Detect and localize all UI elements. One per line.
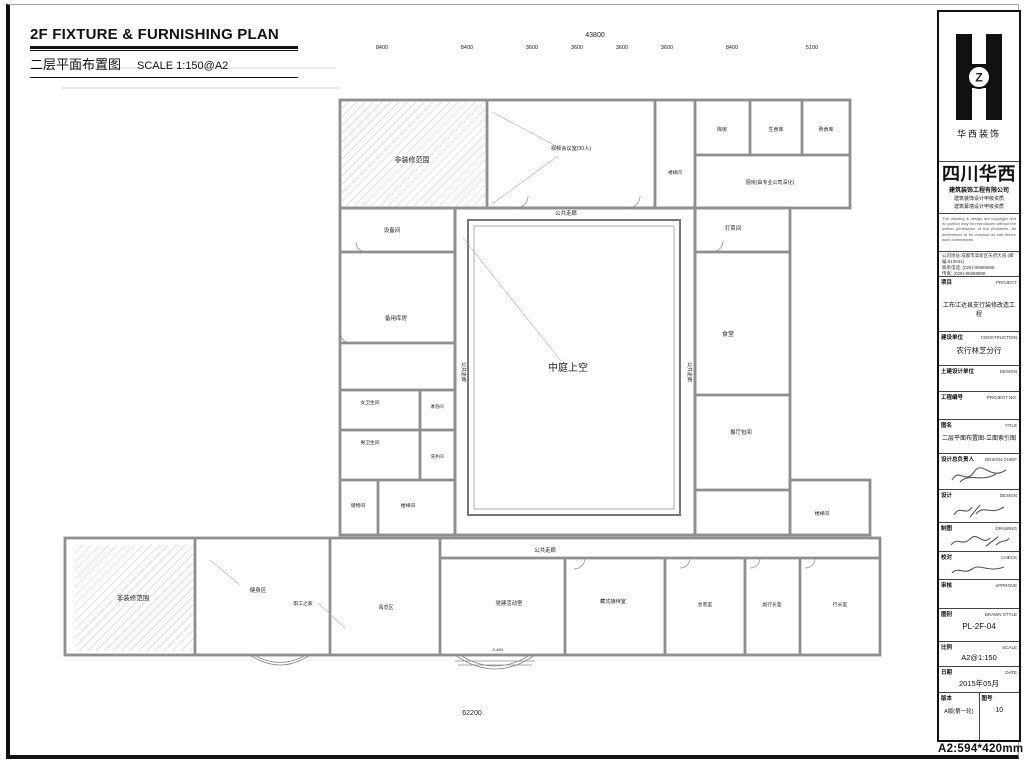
tb-row-project: 项目PROJECT 工布江达县支行装修改造工程: [939, 277, 1019, 332]
room-label-video-conf: 视频会议室(30人): [551, 144, 592, 152]
room-label-kitchen: 厨房(由专业公司深化): [746, 179, 795, 186]
dim-top-seg: 8400: [461, 45, 473, 51]
drawing-title: 2F FIXTURE & FURNISHING PLAN 二层平面布置图 SCA…: [30, 26, 298, 78]
room-label-serving: 打菜间: [725, 224, 741, 232]
drawing-title-value: 二层平面布置图-立面索引图: [941, 433, 1017, 442]
company-cert: 建筑装饰设计甲级资质: [941, 195, 1017, 202]
dim-top-seg: 3600: [571, 45, 583, 51]
title-rule: [30, 77, 298, 78]
company-name: 四川华西: [941, 165, 1017, 184]
room-label-washroom: 洗手间: [430, 453, 443, 460]
dim-top-seg: 3600: [616, 45, 628, 51]
tb-label-en: CONSTRUCTION: [981, 335, 1017, 340]
tb-row-approve: 审核APPROVE: [939, 580, 1019, 609]
signature: [946, 501, 1012, 519]
entrance-porches: [250, 655, 535, 669]
copyright-notice: The drawing & design are copyright and n…: [939, 214, 1019, 252]
dim-top-seg: 3600: [526, 45, 538, 51]
company-line: 建筑装饰工程有限公司: [941, 185, 1017, 194]
tb-label-en: TITLE: [1005, 423, 1017, 428]
room-label-tibetan-room: 藏式接待室: [600, 597, 626, 605]
logo-letter: Z: [975, 70, 982, 84]
corridor-label-bottom: 公共走廊: [534, 546, 556, 554]
tb-row-design-chief: 设计总负责人DESIGN CHIEF: [939, 454, 1019, 490]
tb-row-drafting: 制图DRAWING: [939, 523, 1019, 552]
dim-top-seg: 5100: [806, 45, 818, 51]
tb-label: 图别: [941, 610, 952, 618]
tb-label-en: PROJECT: [996, 280, 1017, 285]
tb-label: 工程编号: [941, 393, 963, 401]
room-label-manager-office: 行长室: [833, 601, 848, 608]
tb-label: 图名: [941, 421, 952, 429]
paper-size-note: A2:594*420mm: [938, 743, 1023, 755]
tb-row-version-sheetno: 版本 A版(第一轮) 图号 10: [939, 693, 1019, 740]
room-label-party-room: 党建活动室: [496, 599, 524, 607]
company-contact: 公司地址:成都市高新区天府大道 (邮编:610041) 联系电话: (028)-…: [939, 252, 1019, 277]
tb-label: 土建设计单位: [941, 367, 974, 375]
room-label-backup-store: 备用库房: [385, 314, 408, 322]
room-label-female-wc: 女卫生间: [360, 399, 379, 406]
room-label-store-top: 库房: [717, 126, 727, 133]
dim-top-seg: 3600: [661, 45, 673, 51]
tb-label: 设计: [941, 491, 952, 499]
corridor-label-right: 公共走廊: [686, 362, 693, 382]
drawing-sheet: 非装修范围 视频会议室(30人) 库房 生食库 熟食库 厨房(由专业公司深化) …: [0, 0, 1024, 768]
company-name-block: 四川华西 建筑装饰工程有限公司 建筑装饰设计甲级资质 建筑幕墙设计甲级资质: [939, 162, 1019, 214]
version-value: A版(第一轮): [941, 707, 977, 715]
room-label-atrium: 中庭上空: [548, 361, 588, 374]
signature: [946, 563, 1012, 577]
tb-label-en: SCALE: [1002, 645, 1017, 650]
construction-unit: 农行林芝分行: [941, 345, 1017, 356]
room-label-cooked-food: 熟食库: [818, 126, 833, 133]
drawing-code: PL-2F-04: [941, 622, 1017, 631]
title-block: Z 华西装饰 四川华西 建筑装饰工程有限公司 建筑装饰设计甲级资质 建筑幕墙设计…: [937, 10, 1021, 742]
company-logo: Z: [956, 34, 1002, 120]
signature: [946, 465, 1012, 485]
tb-row-draw-style: 图别DRAWN STYLE PL-2F-04: [939, 609, 1019, 642]
room-label-reading: 阅览区: [378, 604, 393, 611]
room-label-fitness: 健身区: [250, 586, 267, 594]
drawing-title-scale: SCALE 1:150@A2: [137, 60, 228, 72]
room-label-staff-home: 职工之家: [293, 600, 312, 607]
dim-bottom-total: 62200: [462, 710, 482, 717]
room-label-deputy-office: 副行长室: [762, 601, 781, 608]
room-label-stair-right: 楼梯间: [815, 510, 830, 517]
tb-label-en: DESIGN CHIEF: [985, 457, 1017, 462]
room-label-stair-top: 楼梯间: [668, 169, 682, 176]
date-value: 2015年05月: [941, 678, 1017, 689]
tb-label: 校对: [941, 553, 952, 561]
tb-row-check: 校对CHECK: [939, 552, 1019, 580]
tb-label-en: PROJECT NO.: [987, 395, 1017, 400]
tb-label-en: DESIGN: [1000, 369, 1017, 374]
tb-label-en: DESIGN: [1000, 493, 1017, 498]
tb-row-project-no: 工程编号PROJECT NO.: [939, 392, 1019, 420]
drawing-title-en: 2F FIXTURE & FURNISHING PLAN: [30, 26, 298, 43]
company-address: 公司地址:成都市高新区天府大道 (邮编:610041): [942, 253, 1016, 265]
room-label-storage: 储物间: [351, 502, 366, 509]
room-label-reception: 会客室: [698, 601, 713, 608]
room-label-private-dining: 餐厅包间: [730, 428, 752, 436]
tb-label: 制图: [941, 524, 952, 532]
dim-top-seg: 8400: [376, 45, 388, 51]
tb-row-construction: 建设单位CONSTRUCTION 农行林芝分行: [939, 332, 1019, 366]
tb-label: 项目: [941, 278, 952, 286]
tb-label: 图号: [982, 694, 993, 702]
room-label-non-deco-bottom: 非装修范围: [117, 593, 150, 602]
floor-plan: 非装修范围 视频会议室(30人) 库房 生食库 熟食库 厨房(由专业公司深化) …: [0, 0, 935, 768]
tb-label: 建设单位: [941, 333, 963, 341]
tb-label-en: CHECK: [1001, 555, 1017, 560]
tb-label: 设计总负责人: [941, 455, 974, 463]
tb-row-title: 图名TITLE 二层平面布置图-立面索引图: [939, 420, 1019, 454]
room-label-canteen: 食堂: [722, 330, 734, 338]
corridor-label-top: 公共走廊: [555, 209, 577, 217]
scale-value: A2@1:150: [941, 653, 1017, 662]
sheet-no-value: 10: [982, 707, 1018, 714]
logo-caption: 华西装饰: [957, 127, 1001, 140]
level-note: -0.450: [491, 647, 503, 652]
tb-row-scale: 比例SCALE A2@1:150: [939, 642, 1019, 667]
tb-row-design: 设计DESIGN: [939, 490, 1019, 523]
corridor-label-left: 公共走廊: [460, 362, 467, 382]
dim-top-total: 43800: [585, 32, 605, 39]
project-name: 工布江达县支行装修改造工程: [941, 300, 1017, 318]
title-rule: [30, 46, 298, 49]
tb-label: 版本: [941, 694, 952, 702]
company-logo-block: Z 华西装饰: [939, 12, 1019, 162]
tb-label-en: DRAWN STYLE: [985, 612, 1017, 617]
room-label-shower: 淋浴间: [430, 403, 443, 410]
tb-label-en: DATE: [1005, 670, 1017, 675]
tb-label: 比例: [941, 643, 952, 651]
drawing-title-cn: 二层平面布置图: [30, 54, 121, 73]
tb-label: 日期: [941, 668, 952, 676]
company-cert: 建筑幕墙设计甲级资质: [941, 203, 1017, 210]
tb-label-en: DRAWING: [995, 526, 1017, 531]
tb-label: 审核: [941, 581, 952, 589]
room-label-raw-food: 生食库: [768, 126, 783, 133]
tb-row-date: 日期DATE 2015年05月: [939, 667, 1019, 693]
room-label-male-wc: 男卫生间: [360, 439, 379, 446]
room-label-non-deco-top: 非装修范围: [395, 155, 430, 164]
dim-top-seg: 8400: [726, 45, 738, 51]
room-label-stair-left: 楼梯间: [401, 502, 416, 509]
tb-row-civil-design: 土建设计单位DESIGN: [939, 366, 1019, 392]
tb-label-en: APPROVE: [995, 583, 1017, 588]
signature: [946, 534, 1012, 549]
non-decoration-hatch-areas: [75, 102, 485, 651]
room-label-equipment: 设备间: [384, 226, 401, 234]
